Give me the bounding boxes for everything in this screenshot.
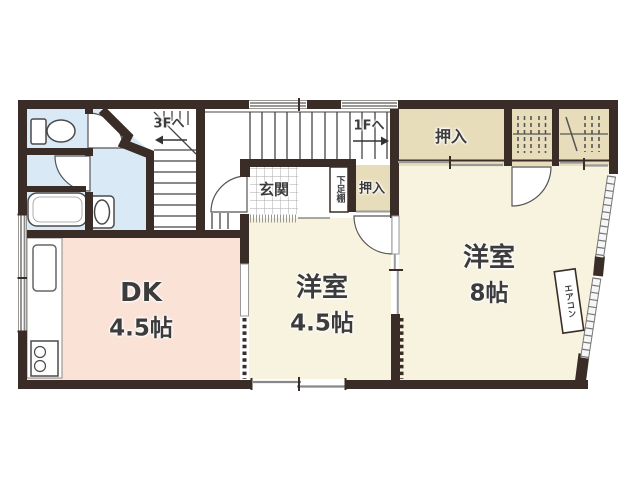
western-room-large bbox=[399, 166, 609, 381]
western-small-label: 洋室 bbox=[296, 275, 348, 301]
shoe-shelf-label: 下足棚 bbox=[335, 176, 344, 203]
diagonal-wall-chunk bbox=[598, 256, 600, 276]
kitchen-sink-icon bbox=[33, 245, 56, 291]
western-large-label: 洋室 bbox=[463, 245, 515, 271]
window-left bbox=[18, 214, 27, 332]
window-top-2 bbox=[341, 101, 398, 109]
western-small-size: 4.5帖 bbox=[290, 313, 354, 336]
stove-icon bbox=[31, 341, 58, 376]
floorplan-canvas: DK 4.5帖 洋室 4.5帖 洋室 8帖 押入 押入 玄関 下足棚 3Fへ 1… bbox=[0, 0, 640, 480]
closet-small-label: 押入 bbox=[359, 183, 385, 196]
closet-large-label: 押入 bbox=[435, 129, 467, 145]
dk-room-size: 4.5帖 bbox=[109, 318, 173, 341]
stairs-down-label: 1Fへ bbox=[354, 120, 385, 133]
bathtub-icon bbox=[28, 193, 87, 226]
entrance-label: 玄関 bbox=[259, 183, 289, 198]
entrance-step bbox=[250, 218, 330, 219]
window-bottom bbox=[251, 377, 346, 391]
floorplan-drawing bbox=[0, 0, 640, 480]
entrance-hall bbox=[298, 166, 330, 218]
stairs-up-label: 3Fへ bbox=[154, 118, 185, 131]
dk-divider-panel bbox=[241, 264, 249, 316]
western-large-size: 8帖 bbox=[469, 283, 508, 306]
dk-room-label: DK bbox=[120, 280, 162, 306]
toilet-icon bbox=[31, 119, 75, 144]
diagonal-wall-corner bbox=[580, 354, 584, 385]
